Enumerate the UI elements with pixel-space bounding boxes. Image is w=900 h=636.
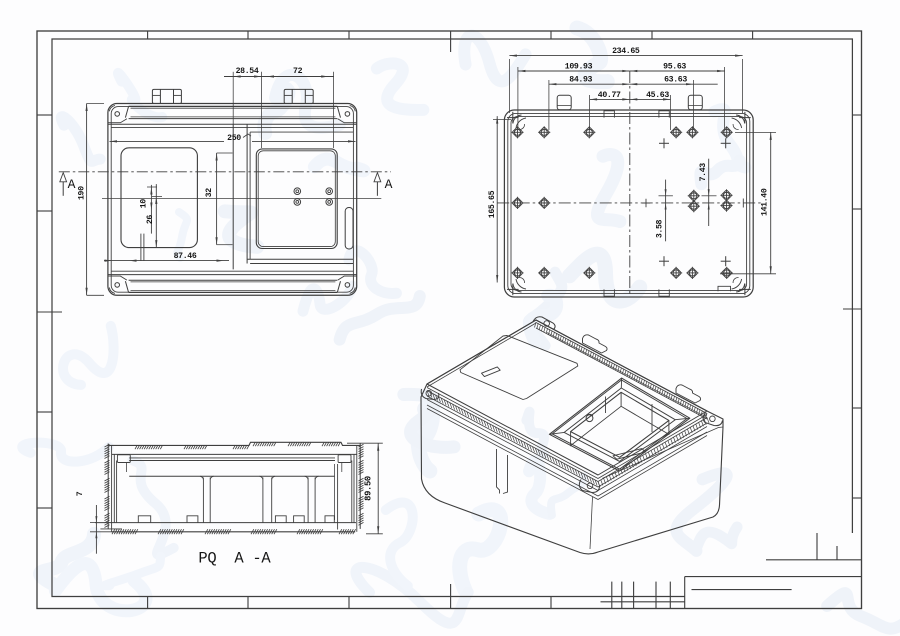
svg-text:63.63: 63.63 (664, 76, 687, 85)
svg-text:40.77: 40.77 (598, 91, 621, 100)
svg-text:32: 32 (205, 188, 214, 198)
svg-text:A: A (68, 177, 76, 192)
svg-text:7.43: 7.43 (699, 163, 708, 182)
svg-text:45.63: 45.63 (646, 91, 669, 100)
svg-text:109.93: 109.93 (565, 63, 593, 72)
svg-text:72: 72 (293, 67, 303, 76)
svg-text:PQ A -A: PQ A -A (198, 550, 271, 568)
svg-text:234.65: 234.65 (612, 47, 640, 56)
svg-text:95.63: 95.63 (663, 63, 686, 72)
svg-text:89.50: 89.50 (364, 476, 374, 501)
svg-text:28.54: 28.54 (236, 67, 259, 76)
svg-text:190: 190 (77, 186, 86, 200)
svg-text:10: 10 (139, 199, 148, 209)
svg-text:165.65: 165.65 (488, 190, 497, 218)
svg-text:26: 26 (146, 215, 155, 225)
svg-text:A: A (385, 177, 393, 192)
svg-text:3.58: 3.58 (656, 219, 665, 238)
svg-text:84.93: 84.93 (569, 76, 592, 85)
svg-text:250: 250 (227, 134, 241, 143)
svg-text:87.46: 87.46 (174, 252, 197, 261)
svg-text:141.40: 141.40 (760, 188, 769, 216)
svg-text:7: 7 (76, 491, 85, 496)
